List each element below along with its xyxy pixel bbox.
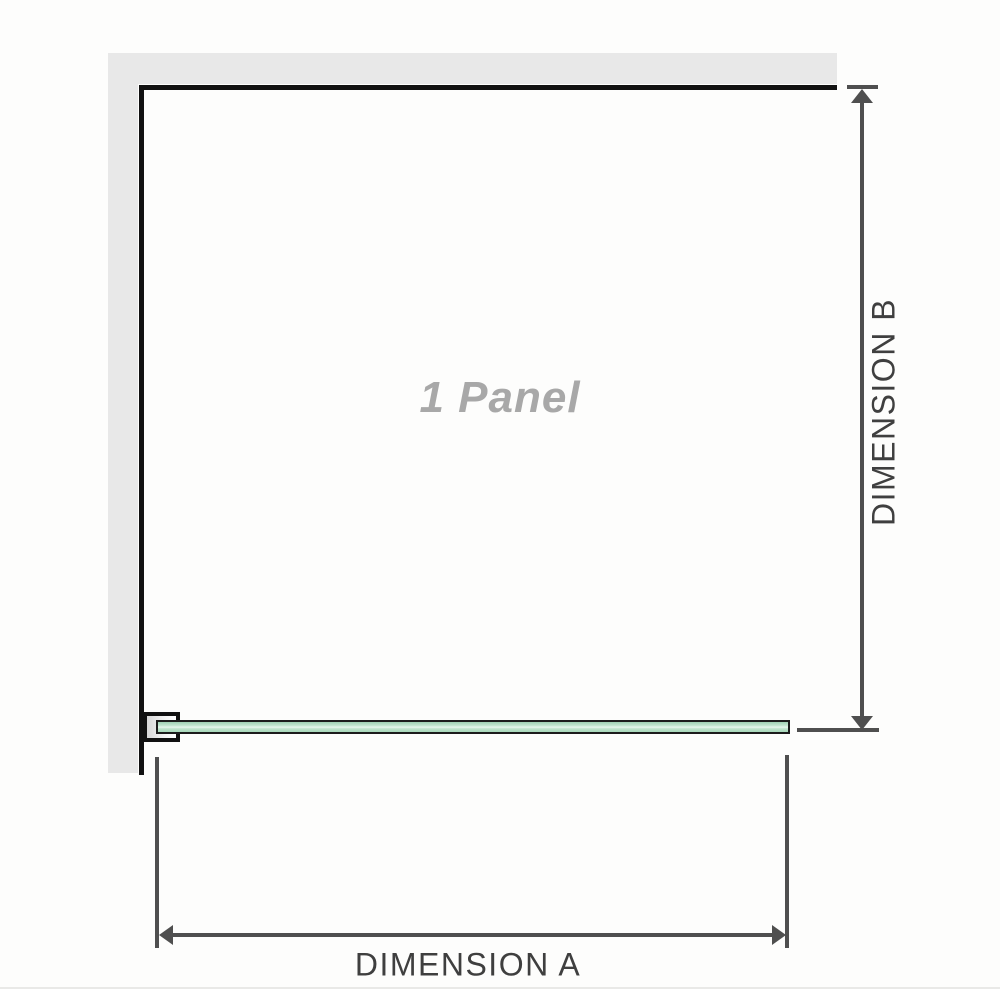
dimension-a-line bbox=[172, 933, 773, 937]
glass-panel bbox=[156, 720, 790, 734]
dimension-b-label: DIMENSION B bbox=[866, 298, 903, 526]
dimension-b-arrowhead-up-icon bbox=[851, 89, 873, 103]
wall-segment-top bbox=[108, 53, 837, 84]
shower-panel-dimension-diagram: 1 Panel DIMENSION B DIMENSION A bbox=[0, 0, 1000, 1000]
dimension-a-arrowhead-left-icon bbox=[159, 925, 173, 945]
dimension-a-extension-line-right bbox=[785, 755, 789, 948]
wall-inner-outline-top bbox=[139, 85, 837, 90]
page-bottom-margin bbox=[0, 989, 1000, 1000]
dimension-a-extension-line-left bbox=[155, 757, 159, 948]
dimension-b-line bbox=[860, 100, 864, 717]
dimension-a-label: DIMENSION A bbox=[355, 947, 581, 984]
dimension-b-arrowhead-down-icon bbox=[851, 716, 873, 730]
dimension-a-arrowhead-right-icon bbox=[772, 925, 786, 945]
wall-segment-left bbox=[108, 53, 138, 773]
panel-count-label: 1 Panel bbox=[419, 373, 580, 423]
wall-inner-outline-left bbox=[139, 85, 144, 775]
